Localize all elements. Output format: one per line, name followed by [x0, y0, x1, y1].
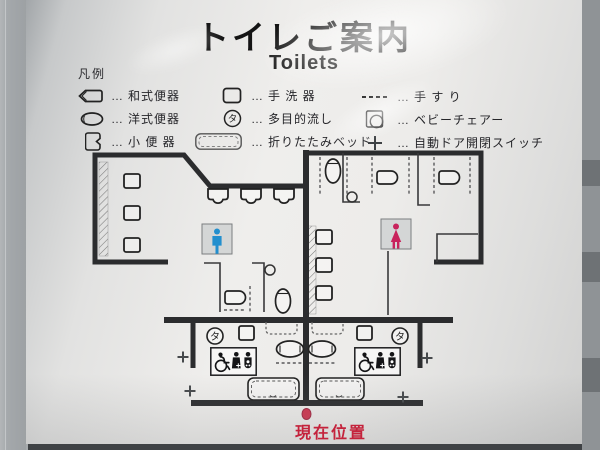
toilet-guide-sign-photo: { "header": { "title": "トイレご案内", "subtit… [0, 0, 600, 450]
svg-text:タ: タ [210, 331, 220, 343]
current-location-label: 現在位置 [256, 419, 406, 443]
stall-partitions [204, 153, 478, 315]
svg-text:タ: タ [395, 331, 405, 343]
men-pictogram [202, 224, 232, 254]
women-pictogram [381, 219, 411, 249]
urinal-icon [208, 189, 294, 203]
walls [95, 150, 481, 403]
toilet-floor-plan: タ タ [0, 0, 600, 450]
current-location-marker [302, 409, 311, 420]
